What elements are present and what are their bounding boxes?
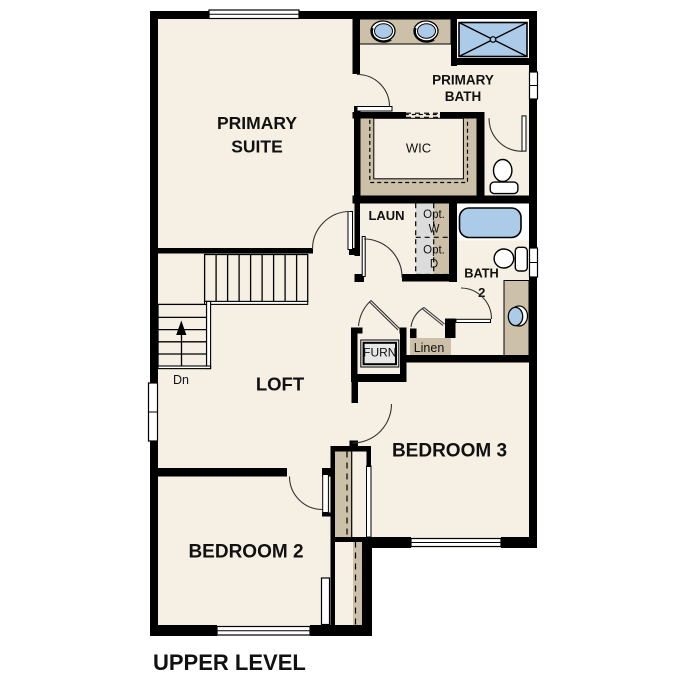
svg-text:PRIMARY: PRIMARY bbox=[217, 113, 297, 133]
svg-text:UPPER LEVEL: UPPER LEVEL bbox=[153, 650, 306, 675]
svg-text:BEDROOM 3: BEDROOM 3 bbox=[392, 441, 507, 462]
svg-text:BATH: BATH bbox=[445, 89, 482, 104]
svg-text:2: 2 bbox=[478, 285, 485, 300]
svg-text:WIC: WIC bbox=[406, 141, 431, 156]
svg-text:LAUN: LAUN bbox=[368, 208, 404, 223]
svg-text:Dn: Dn bbox=[173, 373, 189, 387]
svg-text:PRIMARY: PRIMARY bbox=[432, 73, 494, 88]
svg-text:BATH: BATH bbox=[464, 266, 499, 281]
svg-text:SUITE: SUITE bbox=[231, 137, 283, 157]
svg-text:FURN: FURN bbox=[363, 346, 396, 360]
svg-text:BEDROOM 2: BEDROOM 2 bbox=[188, 542, 303, 563]
svg-text:LOFT: LOFT bbox=[256, 374, 305, 395]
svg-text:Linen: Linen bbox=[414, 341, 445, 355]
